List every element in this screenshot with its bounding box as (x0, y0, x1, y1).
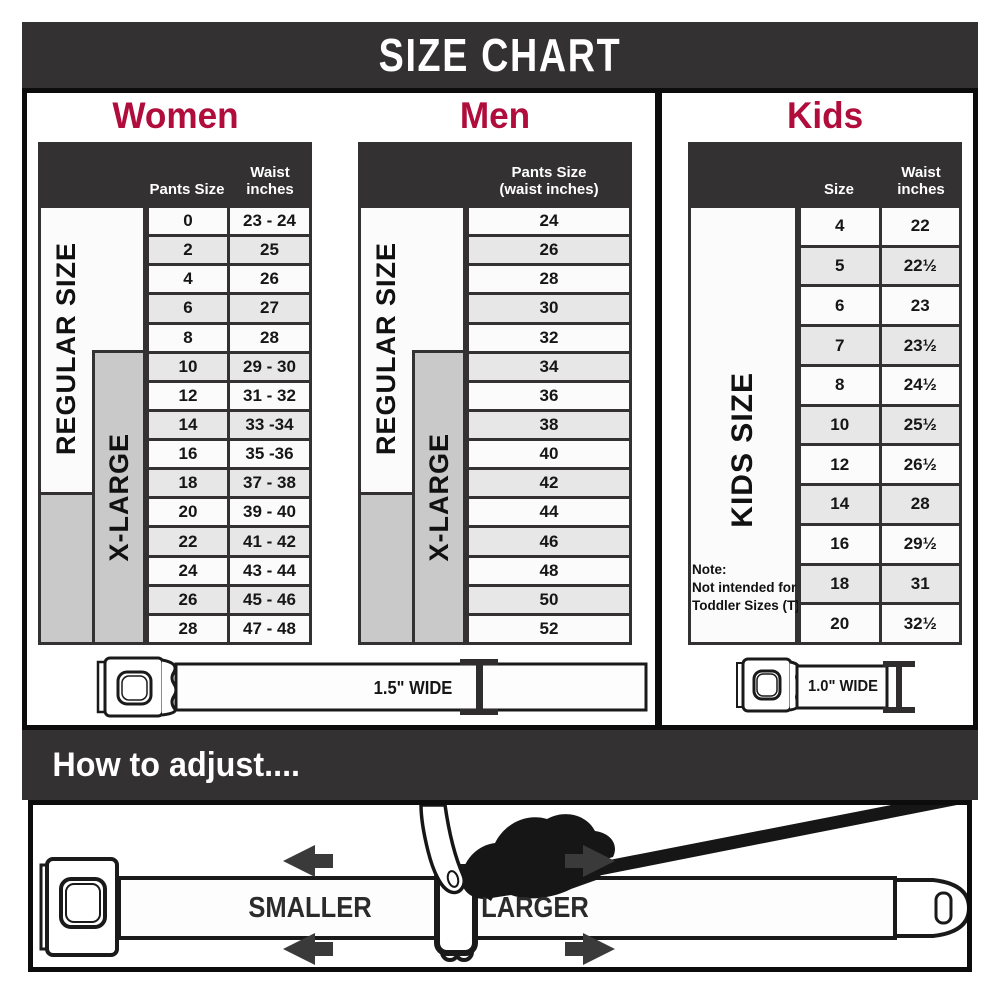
size-cell: 29½ (882, 526, 960, 563)
size-cell: 28 (882, 486, 960, 523)
size-cell: 6 (149, 295, 227, 321)
size-cell: 18 (149, 470, 227, 496)
seatbelt-buckle-icon (98, 658, 176, 716)
kids-heading: Kids (705, 96, 945, 136)
size-cell: 26 (149, 587, 227, 613)
women-table-header: Pants Size Waist inches (38, 142, 312, 205)
women-table-body: 023 - 242254266278281029 - 301231 - 3214… (146, 205, 312, 645)
section-divider (655, 93, 662, 725)
size-cell: 26 (469, 237, 629, 263)
adjustment-illustration (33, 805, 967, 967)
size-cell: 27 (230, 295, 309, 321)
size-cell: 42 (469, 470, 629, 496)
women-regular-label: REGULAR SIZE (51, 242, 82, 455)
size-cell: 10 (801, 407, 879, 444)
size-cell: 28 (149, 616, 227, 642)
size-cell: 23 - 24 (230, 208, 309, 234)
size-cell: 4 (149, 266, 227, 292)
size-tables-panel: Women Pants Size Waist inches REGULAR SI… (22, 88, 978, 730)
size-cell: 34 (469, 354, 629, 380)
men-xlarge-label-wrap: X-LARGE (412, 350, 466, 645)
kids-size-label-wrap: KIDS SIZE (688, 320, 798, 580)
men-heading: Men (375, 96, 615, 136)
women-xlarge-band-extension (38, 495, 95, 645)
size-cell: 46 (469, 528, 629, 554)
arrow-left-icon (283, 845, 333, 877)
men-table-header: Pants Size (waist inches) (358, 142, 632, 205)
size-cell: 18 (801, 566, 879, 603)
size-cell: 24½ (882, 367, 960, 404)
size-cell: 37 - 38 (230, 470, 309, 496)
size-chart-page: SIZE CHART Women Pants Size Waist inches… (0, 0, 1000, 1000)
men-xlarge-label: X-LARGE (424, 433, 455, 562)
men-xlarge-band-extension (358, 495, 415, 645)
men-col-pants-size: Pants Size (waist inches) (466, 164, 632, 199)
size-cell: 40 (469, 441, 629, 467)
size-cell: 7 (801, 327, 879, 364)
size-cell: 32½ (882, 605, 960, 642)
size-cell: 14 (801, 486, 879, 523)
size-cell: 22½ (882, 248, 960, 285)
how-to-adjust-heading: How to adjust.... (22, 746, 300, 785)
size-cell: 29 - 30 (230, 354, 309, 380)
title-bar: SIZE CHART (22, 22, 978, 88)
kids-table-header: Size Waist inches (688, 142, 962, 205)
size-cell: 26½ (882, 446, 960, 483)
size-cell: 52 (469, 616, 629, 642)
size-cell: 10 (149, 354, 227, 380)
size-cell: 24 (469, 208, 629, 234)
women-xlarge-label-wrap: X-LARGE (92, 350, 146, 645)
women-regular-label-wrap: REGULAR SIZE (38, 205, 95, 492)
smaller-label: SMALLER (235, 891, 385, 925)
size-cell: 14 (149, 412, 227, 438)
size-cell: 31 - 32 (230, 383, 309, 409)
size-cell: 47 - 48 (230, 616, 309, 642)
men-size-bands: REGULAR SIZE X-LARGE (358, 205, 466, 645)
size-cell: 30 (469, 295, 629, 321)
women-col-pants-size: Pants Size (146, 181, 228, 198)
belt-tip (895, 880, 967, 936)
size-cell: 23½ (882, 327, 960, 364)
kids-size-label: KIDS SIZE (726, 372, 760, 528)
size-cell: 26 (230, 266, 309, 292)
men-table-body: 242628303234363840424446485052 (466, 205, 632, 645)
size-cell: 35 -36 (230, 441, 309, 467)
size-cell: 25½ (882, 407, 960, 444)
size-cell: 32 (469, 325, 629, 351)
size-cell: 31 (882, 566, 960, 603)
size-cell: 41 - 42 (230, 528, 309, 554)
size-cell: 39 - 40 (230, 499, 309, 525)
size-cell: 12 (801, 446, 879, 483)
larger-label: LARGER (460, 891, 610, 925)
size-cell: 50 (469, 587, 629, 613)
size-cell: 33 -34 (230, 412, 309, 438)
size-cell: 45 - 46 (230, 587, 309, 613)
size-cell: 38 (469, 412, 629, 438)
size-cell: 24 (149, 558, 227, 584)
size-cell: 22 (149, 528, 227, 554)
seatbelt-buckle-icon (41, 859, 117, 955)
kids-col-size: Size (798, 181, 880, 198)
size-cell: 2 (149, 237, 227, 263)
size-cell: 16 (801, 526, 879, 563)
page-title: SIZE CHART (379, 28, 622, 82)
size-cell: 44 (469, 499, 629, 525)
size-cell: 12 (149, 383, 227, 409)
size-cell: 20 (801, 605, 879, 642)
size-cell: 8 (801, 367, 879, 404)
size-cell: 28 (469, 266, 629, 292)
men-regular-label-wrap: REGULAR SIZE (358, 205, 415, 492)
size-cell: 43 - 44 (230, 558, 309, 584)
kids-col-waist: Waist inches (880, 164, 962, 199)
size-cell: 5 (801, 248, 879, 285)
size-cell: 28 (230, 325, 309, 351)
women-col-waist: Waist inches (228, 164, 312, 199)
women-heading: Women (55, 96, 295, 136)
size-cell: 8 (149, 325, 227, 351)
size-cell: 6 (801, 287, 879, 324)
kids-table-body: 422522½623723½824½1025½1226½14281629½183… (798, 205, 962, 645)
how-to-adjust-bar: How to adjust.... (22, 730, 978, 800)
size-cell: 23 (882, 287, 960, 324)
size-cell: 36 (469, 383, 629, 409)
adult-belt-width-label: 1.5" WIDE (349, 678, 478, 699)
men-regular-label: REGULAR SIZE (371, 242, 402, 455)
kids-belt-width-label: 1.0" WIDE (788, 678, 898, 696)
size-cell: 16 (149, 441, 227, 467)
women-size-bands: REGULAR SIZE X-LARGE (38, 205, 146, 645)
size-cell: 48 (469, 558, 629, 584)
size-cell: 20 (149, 499, 227, 525)
adjustment-illustration-panel: SMALLER LARGER (28, 800, 972, 972)
size-cell: 4 (801, 208, 879, 245)
women-xlarge-label: X-LARGE (104, 433, 135, 562)
size-cell: 25 (230, 237, 309, 263)
size-cell: 22 (882, 208, 960, 245)
size-cell: 0 (149, 208, 227, 234)
